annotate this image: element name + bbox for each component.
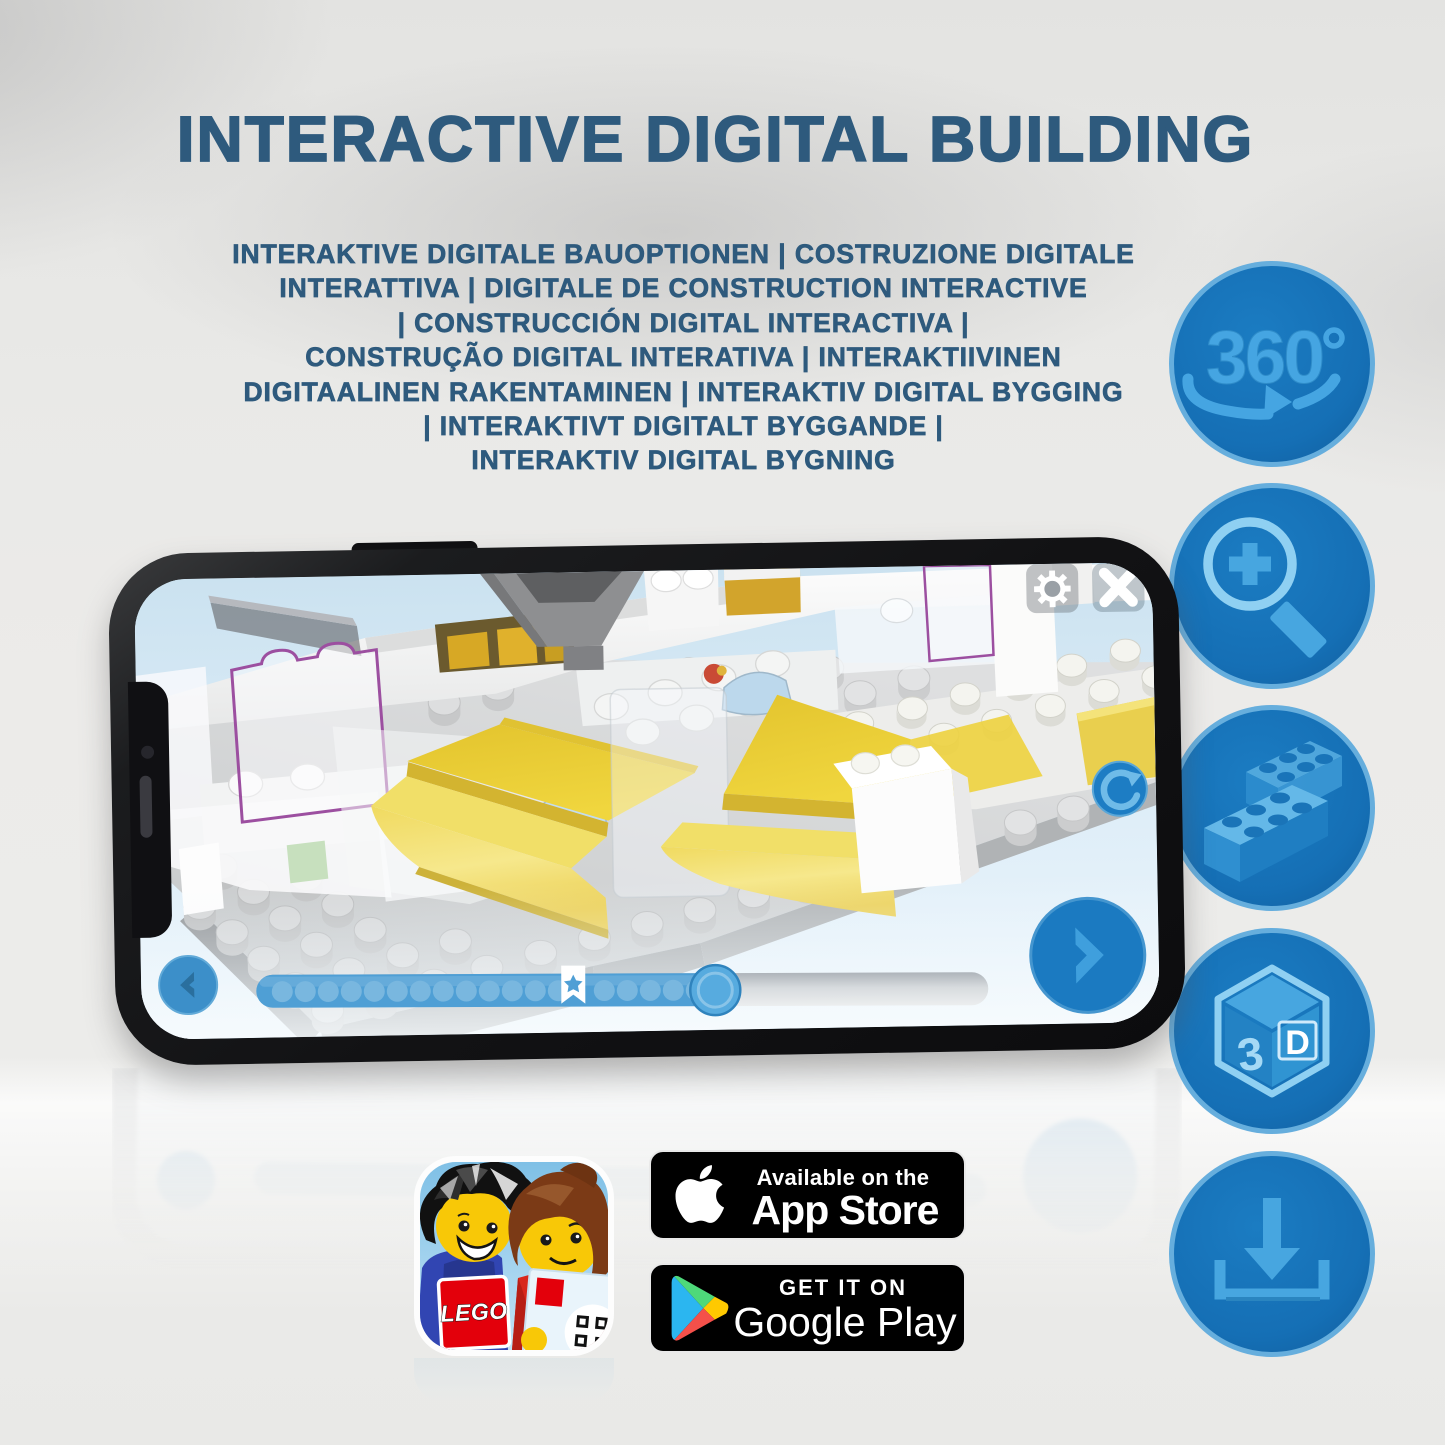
svg-text:App Store: App Store — [752, 1187, 939, 1233]
svg-text:D: D — [1285, 1024, 1310, 1062]
svg-text:LEGO: LEGO — [440, 1297, 508, 1326]
svg-text:GET IT ON: GET IT ON — [779, 1275, 907, 1300]
svg-text:Google Play: Google Play — [733, 1299, 957, 1345]
svg-text:360: 360 — [1206, 315, 1322, 399]
